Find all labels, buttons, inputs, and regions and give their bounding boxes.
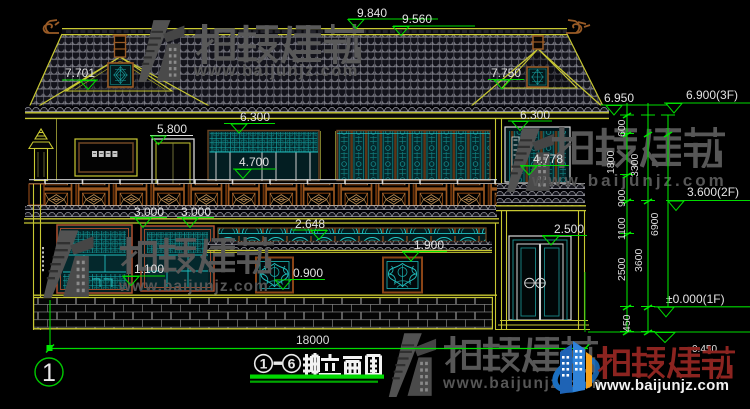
- svg-text:600: 600: [616, 119, 628, 137]
- svg-text:6900: 6900: [649, 212, 661, 236]
- svg-text:3300: 3300: [629, 153, 641, 177]
- svg-text:3.000: 3.000: [181, 205, 211, 219]
- svg-text:±0.000(1F): ±0.000(1F): [666, 292, 725, 306]
- svg-text:3.600(2F): 3.600(2F): [687, 185, 739, 199]
- svg-text:2.500: 2.500: [554, 222, 584, 236]
- svg-text:3600: 3600: [633, 248, 645, 272]
- svg-text:1: 1: [42, 359, 56, 387]
- svg-text:900: 900: [616, 189, 628, 207]
- svg-text:6.900(3F): 6.900(3F): [686, 88, 738, 102]
- svg-text:6.300: 6.300: [240, 110, 270, 124]
- svg-text:7.750: 7.750: [491, 66, 521, 80]
- svg-text:6: 6: [288, 356, 296, 372]
- svg-text:2500: 2500: [616, 257, 628, 281]
- svg-text:1.900: 1.900: [414, 238, 444, 252]
- svg-text:9.560: 9.560: [402, 12, 432, 26]
- svg-text:2.648: 2.648: [295, 217, 325, 231]
- svg-text:450: 450: [621, 314, 633, 332]
- svg-text:1100: 1100: [616, 217, 628, 240]
- svg-text:9.840: 9.840: [357, 6, 387, 20]
- svg-text:1800: 1800: [605, 150, 617, 174]
- svg-text:1.100: 1.100: [134, 262, 164, 276]
- svg-text:5.800: 5.800: [157, 122, 187, 136]
- svg-text:7.701: 7.701: [65, 66, 95, 80]
- svg-text:www.baijunjz.com: www.baijunjz.com: [193, 62, 359, 80]
- svg-text:6.300: 6.300: [520, 108, 550, 122]
- svg-text:3.000: 3.000: [134, 205, 164, 219]
- svg-text:www.baijunjz.com: www.baijunjz.com: [118, 278, 269, 295]
- svg-text:6.950: 6.950: [604, 91, 634, 105]
- svg-text:4.778: 4.778: [533, 152, 563, 166]
- svg-text:1: 1: [260, 356, 268, 372]
- svg-text:www.baijunjz.com: www.baijunjz.com: [594, 377, 729, 394]
- svg-text:4.700: 4.700: [239, 155, 269, 169]
- svg-text:0.900: 0.900: [293, 266, 323, 280]
- svg-text:18000: 18000: [296, 333, 330, 347]
